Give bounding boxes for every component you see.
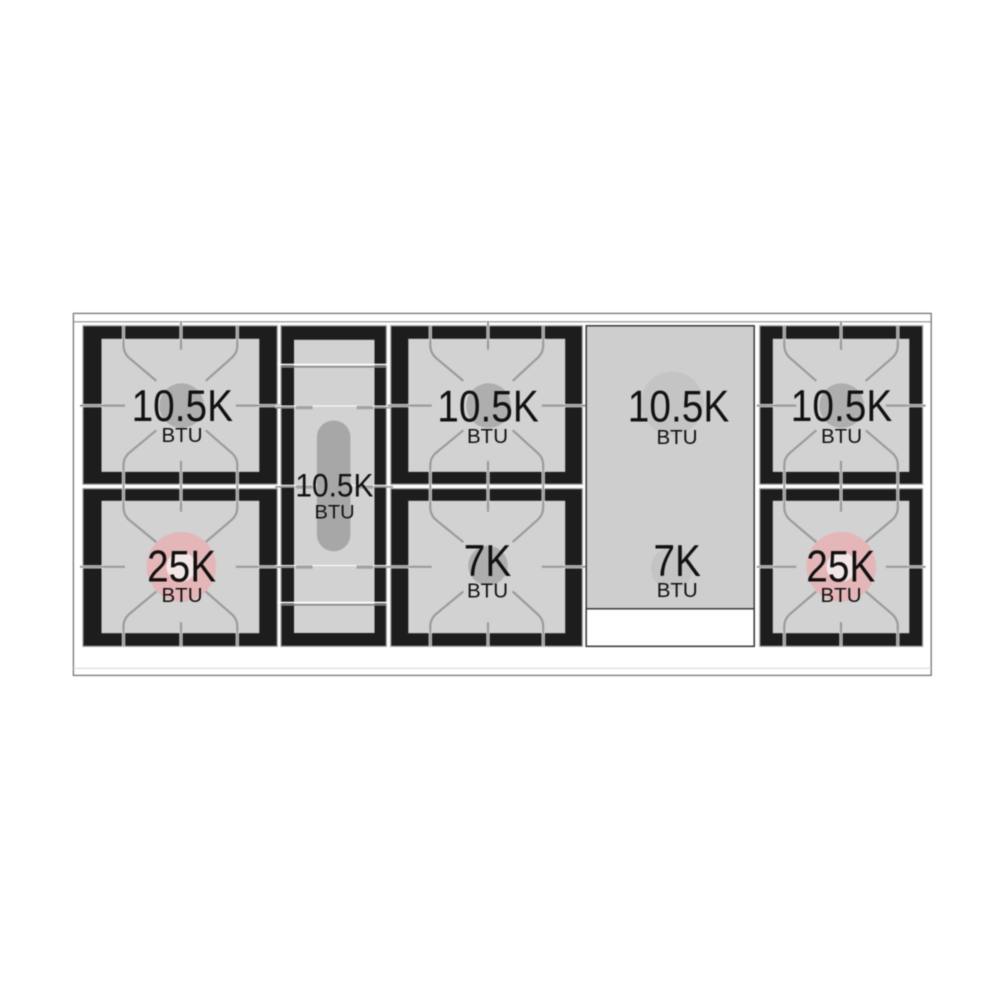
svg-text:BTU: BTU xyxy=(162,424,203,447)
svg-text:BTU: BTU xyxy=(467,425,508,448)
svg-text:10.5K: 10.5K xyxy=(628,381,730,431)
svg-text:10.5K: 10.5K xyxy=(295,468,373,504)
svg-text:BTU: BTU xyxy=(821,425,862,448)
svg-text:BTU: BTU xyxy=(657,426,698,449)
svg-text:BTU: BTU xyxy=(314,502,354,523)
svg-text:BTU: BTU xyxy=(821,584,862,607)
svg-text:BTU: BTU xyxy=(657,579,698,602)
svg-text:BTU: BTU xyxy=(162,584,203,607)
svg-text:BTU: BTU xyxy=(467,579,508,602)
svg-text:10.5K: 10.5K xyxy=(437,381,539,431)
svg-text:10.5K: 10.5K xyxy=(791,381,893,431)
svg-text:7K: 7K xyxy=(464,535,512,585)
